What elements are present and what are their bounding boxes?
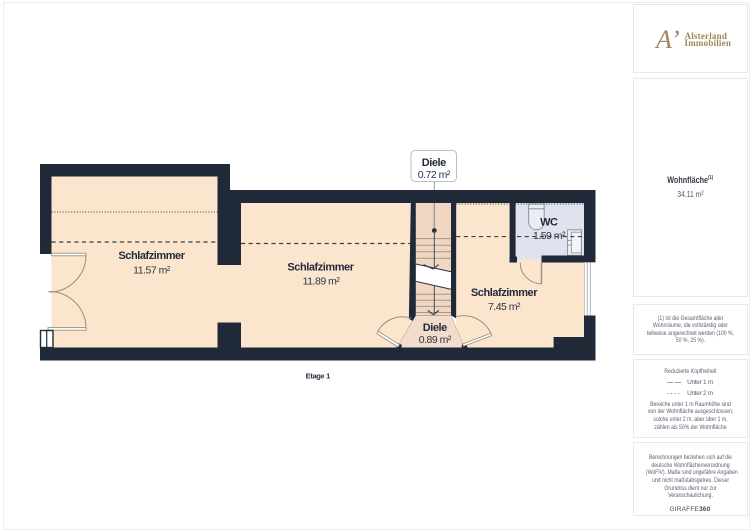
svg-text:WC: WC (540, 217, 558, 229)
svg-text:7.45 m²: 7.45 m² (488, 301, 521, 313)
svg-text:Schlafzimmer: Schlafzimmer (118, 250, 185, 262)
svg-text:0.89 m²: 0.89 m² (419, 334, 452, 346)
svg-text:Diele: Diele (423, 322, 447, 334)
svg-text:11.89 m²: 11.89 m² (303, 276, 341, 288)
svg-text:1.59 m²: 1.59 m² (533, 230, 566, 242)
svg-text:Etage 1: Etage 1 (306, 372, 330, 381)
svg-text:Schlafzimmer: Schlafzimmer (471, 287, 538, 299)
svg-text:Diele: Diele (422, 157, 446, 169)
svg-text:Schlafzimmer: Schlafzimmer (287, 261, 354, 273)
svg-text:0.72 m²: 0.72 m² (418, 169, 451, 181)
svg-text:11.57 m²: 11.57 m² (133, 264, 171, 276)
